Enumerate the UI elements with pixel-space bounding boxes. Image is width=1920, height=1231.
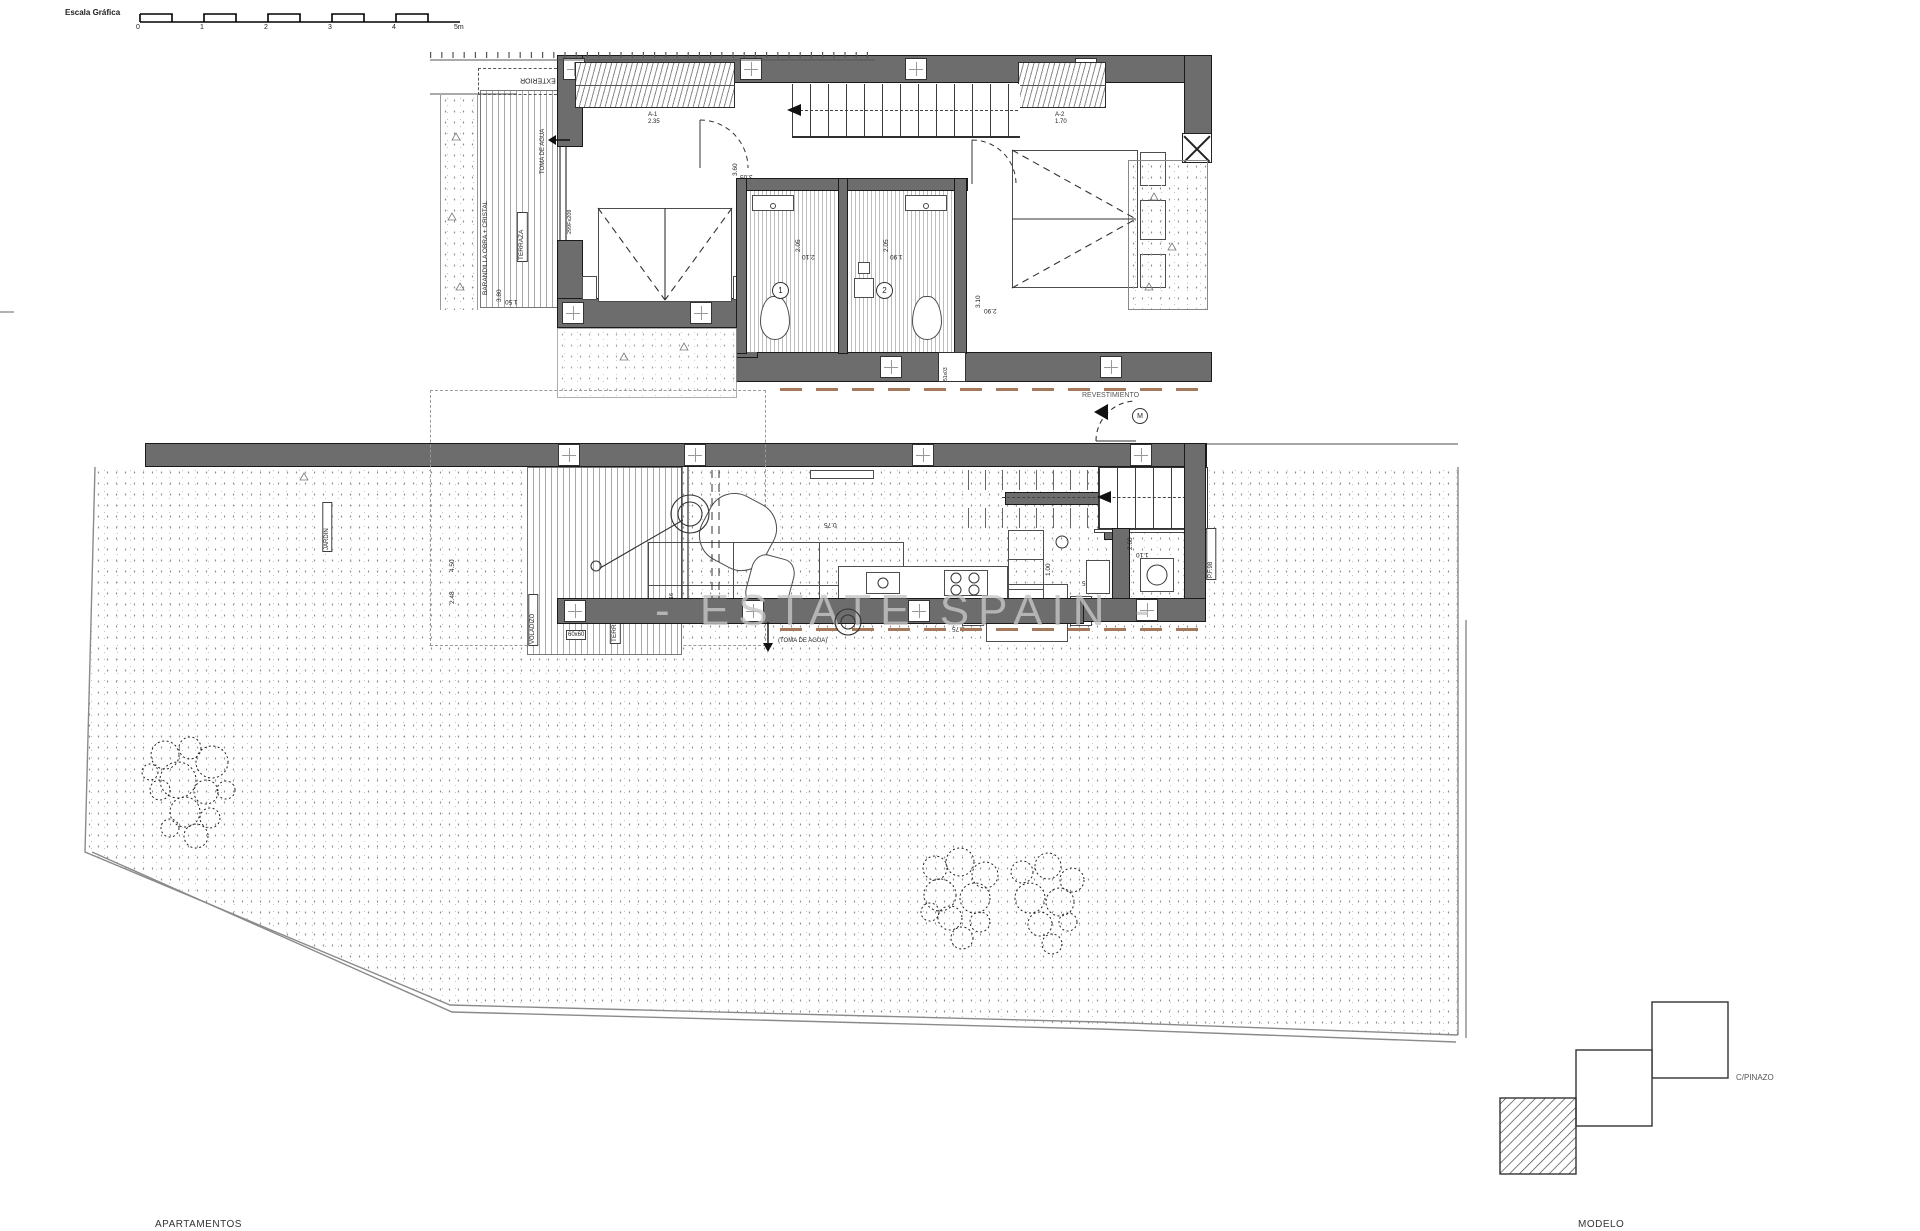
- bed1: [598, 208, 732, 302]
- ground-dim-entry-a: 2.60: [1128, 524, 1135, 550]
- upper-window-a2-name: A-2: [1055, 112, 1064, 118]
- bath-left-wall: [736, 178, 747, 354]
- ground-stairs-dashed-bottom: [968, 508, 1094, 528]
- upper-window-a1-size: 2.35: [648, 119, 660, 125]
- bath2-cabinet-a: [858, 262, 870, 274]
- scale-tick-5: 5m: [454, 24, 464, 31]
- upper-pillar-xbox: [1182, 133, 1212, 163]
- floor-plan-sheet: Escala Gráfica 0 1 2 3 4 5m ARMARIO EXTE…: [0, 0, 1920, 1231]
- upper-toma-agua-label: TOMA DE AGUA: [540, 118, 546, 174]
- upper-dim-bed2-a: 3.10: [976, 282, 983, 308]
- upper-right-garden: [1128, 160, 1208, 310]
- upper-wall-tick-6: [690, 302, 712, 324]
- upper-window-a2: [1018, 62, 1106, 108]
- ground-dim-entry-b: 1.10: [1136, 550, 1149, 557]
- plot-logo: [1500, 1002, 1728, 1174]
- footer-left: APARTAMENTOS: [155, 1219, 242, 1230]
- ground-dim-garden-a: 4.50: [450, 546, 457, 572]
- upper-small-window: [938, 352, 966, 382]
- ground-dim-living-c: 0.75: [824, 520, 837, 527]
- upper-path: [557, 328, 737, 398]
- ground-pf-code: P.F.98: [1206, 528, 1216, 580]
- upper-revestimiento-label: REVESTIMIENTO: [1082, 392, 1139, 399]
- upper-wall-tick-2: [740, 58, 762, 80]
- bath2-sink: [905, 195, 947, 211]
- ground-stairs-dashed-top: [968, 470, 1094, 490]
- street-label: C/PINAZO: [1736, 1074, 1774, 1082]
- upper-window-a1-name: A-1: [648, 112, 657, 118]
- scale-tick-0: 0: [136, 24, 140, 31]
- wall-shelf: [810, 470, 874, 479]
- bath2-cabinet-b: [854, 278, 874, 298]
- watermark: - ESTATE SPAIN -: [655, 586, 1158, 636]
- upper-dim-terraza-b: 1.50: [505, 297, 518, 304]
- ground-top-tick-3: [912, 444, 934, 466]
- ground-tile-label: 60x60: [566, 630, 586, 640]
- bed2: [1012, 150, 1138, 288]
- upper-window-a1: [575, 62, 735, 108]
- upper-wall-tick-3: [905, 58, 927, 80]
- bath-top-wall: [736, 178, 968, 191]
- bed1-nightstand-left: [582, 276, 597, 300]
- ground-voladizo-label: VOLADIZO: [528, 594, 538, 646]
- ground-stairs-walkline: [1002, 497, 1206, 498]
- upper-gravel-strip: [440, 95, 478, 310]
- ground-toma-agua-label: (TOMA DE AGUA): [778, 638, 827, 644]
- upper-glass-code: 299Fx209: [568, 182, 574, 234]
- ground-bottom-tick-1: [564, 600, 586, 622]
- upper-small-window-code: 51x03: [944, 354, 949, 381]
- ground-dim-garden-b: 2.48: [450, 578, 457, 604]
- bath1-dim-b: 2.10: [802, 252, 815, 259]
- bath1-sink: [752, 195, 794, 211]
- upper-dim-terraza-a: 3.80: [497, 276, 504, 302]
- scale-tick-1: 1: [200, 24, 204, 31]
- ground-top-tick-4: [1130, 444, 1152, 466]
- bath-right-wall: [954, 178, 967, 354]
- upper-stairs: [792, 84, 1020, 138]
- scale-bar-label: Escala Gráfica: [65, 9, 120, 17]
- bath1-toilet: [760, 296, 790, 340]
- upper-wall-tick-5: [562, 302, 584, 324]
- bath2-number: 2: [876, 282, 893, 299]
- upper-stairs-walkline: [800, 110, 1018, 111]
- upper-barandilla-label: BARANDILLA OBRA + CRISTAL: [483, 150, 490, 295]
- footer-right: MODELO: [1578, 1219, 1624, 1230]
- scale-tick-2: 2: [264, 24, 268, 31]
- bath2-dim-b: 1.90: [890, 252, 903, 259]
- entry-door-marker: M: [1132, 408, 1148, 424]
- scale-bar-graphic: [140, 14, 460, 22]
- upper-bottom-wall-bed1: [557, 298, 749, 328]
- garden-plot-label: JARDIN: [322, 502, 332, 552]
- bath2-dim-a: 2.05: [884, 228, 891, 252]
- upper-bottom-wall-baths: [736, 352, 1212, 382]
- bath1-number: 1: [772, 282, 789, 299]
- upper-revestimiento-line: [780, 388, 1210, 391]
- bath-divider-wall: [838, 178, 848, 354]
- upper-dim-bed2-b: 2.90: [984, 306, 997, 313]
- upper-wall-tick-8: [1100, 356, 1122, 378]
- upper-terraza-label: TERRAZA: [517, 212, 528, 262]
- upper-window-a2-size: 1.70: [1055, 119, 1067, 125]
- scale-tick-3: 3: [328, 24, 332, 31]
- bath1-dim-a: 2.05: [796, 228, 803, 252]
- entry-right-wall: [1184, 443, 1206, 622]
- ground-dim-kitchen-a: 1.00: [1046, 552, 1053, 576]
- bath2-toilet: [912, 296, 942, 340]
- upper-wall-tick-7: [880, 356, 902, 378]
- scale-tick-4: 4: [392, 24, 396, 31]
- upper-terrace-deck: [480, 90, 558, 308]
- upper-right-wall: [1184, 55, 1212, 135]
